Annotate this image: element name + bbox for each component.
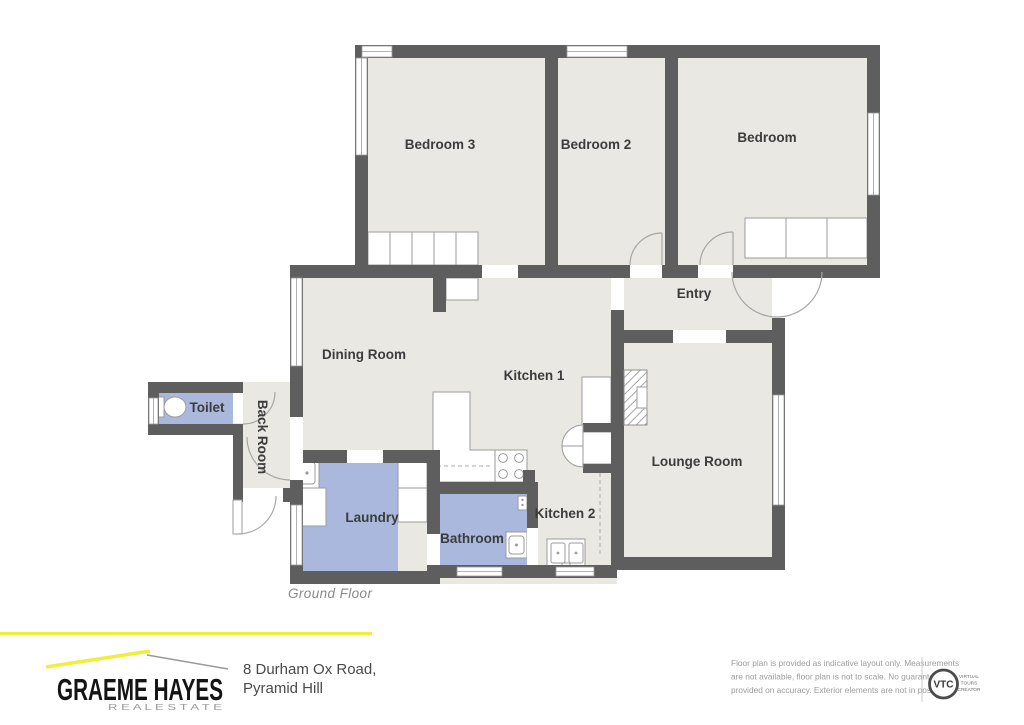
address-line1: 8 Durham Ox Road,	[243, 661, 376, 678]
label-bedroom3: Bedroom 3	[405, 137, 476, 152]
logo-swoosh-gray	[147, 655, 228, 669]
window-kitchen2-bottom	[556, 567, 594, 576]
window-toilet-left	[149, 398, 158, 424]
disclaimer-line2: are not available, floor plan is not to …	[731, 672, 943, 682]
footer-accent-line	[0, 632, 372, 635]
floor-areas	[148, 45, 880, 584]
label-dining: Dining Room	[322, 347, 406, 362]
cabinet-icon	[446, 278, 478, 300]
window-dining-left	[291, 278, 302, 366]
window-bedroom2-top	[567, 46, 627, 57]
vtc-abbr: VTC	[934, 680, 954, 691]
label-bedroom: Bedroom	[737, 130, 796, 145]
vtc-word-creator: CREATOR	[957, 687, 981, 693]
vtc-logo: VTC VIRTUAL TOURS CREATOR	[930, 670, 982, 698]
label-kitchen1: Kitchen 1	[504, 368, 565, 383]
label-bedroom2: Bedroom 2	[561, 137, 632, 152]
window-bedroom3-left	[356, 58, 367, 155]
fireplace-icon	[624, 370, 647, 425]
stove-icon	[495, 450, 527, 482]
label-lounge: Lounge Room	[652, 454, 743, 469]
disclaimer: Floor plan is provided as indicative lay…	[731, 658, 959, 695]
toilet-icon	[155, 397, 186, 417]
floor-plan-page: Bedroom 3 Bedroom 2 Bedroom Entry Dining…	[0, 0, 1024, 725]
window-laundry-left	[291, 505, 302, 565]
hall-cabinet-icon	[582, 377, 611, 427]
footer: GRAEME HAYES R E A L E S T A T E 8 Durha…	[0, 632, 981, 712]
vtc-word-tours: TOURS	[961, 681, 978, 687]
vtc-word-virtual: VIRTUAL	[959, 674, 980, 680]
bathroom-vanity-icon	[506, 532, 527, 558]
brand-tagline: R E A L E S T A T E	[108, 702, 223, 712]
disclaimer-line3: provided on accuracy. Exterior elements …	[731, 685, 947, 695]
floor-level-label: Ground Floor	[288, 586, 372, 601]
laundry-bench-icon	[398, 488, 427, 522]
disclaimer-line1: Floor plan is provided as indicative lay…	[731, 658, 959, 668]
address-line2: Pyramid Hill	[243, 680, 323, 697]
window-lounge-right	[773, 395, 784, 505]
logo-swoosh-yellow	[46, 651, 150, 667]
closet-bedroom-icon	[745, 218, 867, 258]
window-bedroom3-top	[362, 46, 392, 57]
label-toilet: Toilet	[190, 400, 226, 415]
label-bathroom: Bathroom	[440, 531, 504, 546]
window-bedroom-right	[868, 113, 879, 195]
room-floor-lounge	[611, 330, 785, 570]
label-kitchen2: Kitchen 2	[535, 506, 596, 521]
window-bathroom-bottom	[457, 567, 502, 576]
shower-icon	[518, 496, 527, 510]
back-door-leaf	[233, 500, 242, 534]
closet-bedroom3-icon	[368, 232, 478, 265]
label-laundry: Laundry	[345, 510, 399, 525]
floor-plan-canvas: Bedroom 3 Bedroom 2 Bedroom Entry Dining…	[0, 0, 1024, 725]
label-entry: Entry	[677, 286, 712, 301]
label-backroom: Back Room	[255, 400, 270, 474]
